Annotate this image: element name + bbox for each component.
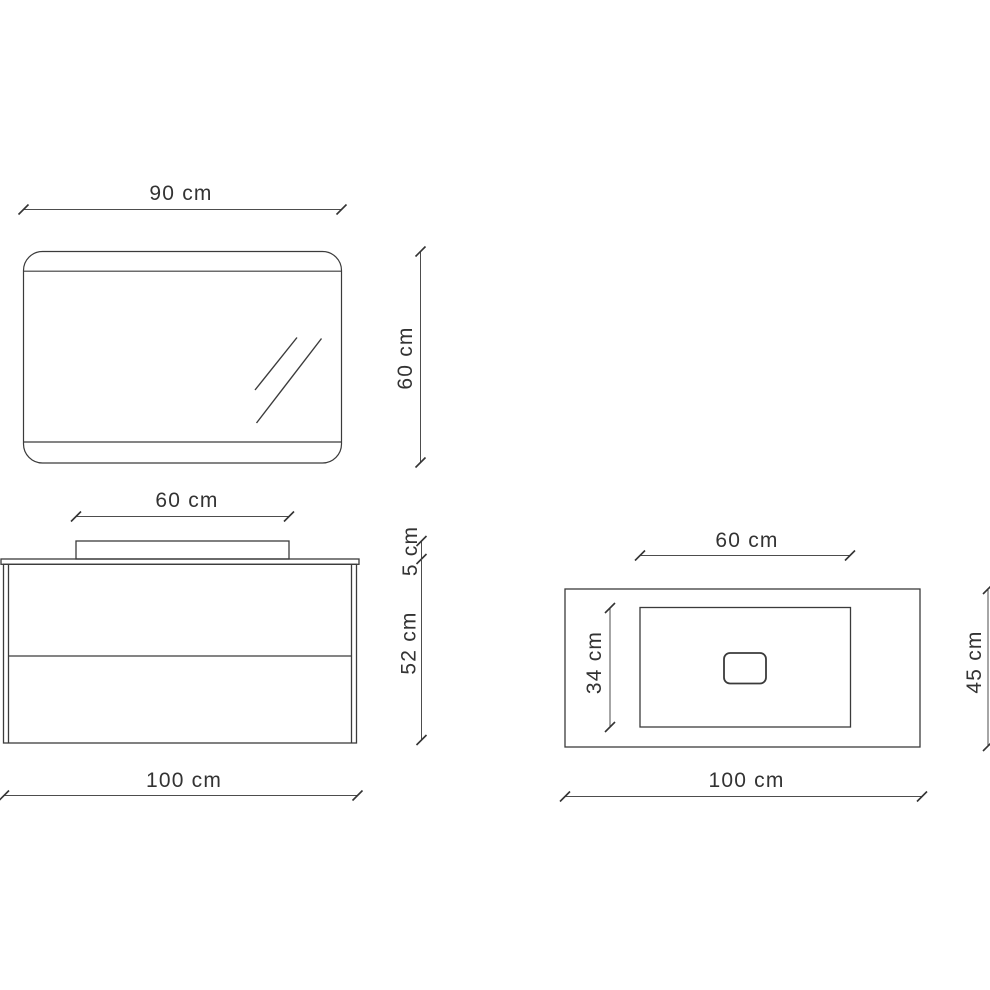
svg-text:34 cm: 34 cm: [583, 631, 606, 694]
svg-text:100 cm: 100 cm: [708, 769, 784, 792]
svg-text:100 cm: 100 cm: [146, 769, 222, 792]
svg-text:60 cm: 60 cm: [155, 489, 218, 512]
svg-text:60 cm: 60 cm: [715, 529, 778, 552]
svg-text:45 cm: 45 cm: [963, 630, 986, 693]
svg-text:60 cm: 60 cm: [394, 326, 417, 389]
svg-text:5 cm: 5 cm: [399, 526, 422, 576]
svg-text:52 cm: 52 cm: [398, 611, 421, 674]
svg-text:90 cm: 90 cm: [149, 182, 212, 205]
